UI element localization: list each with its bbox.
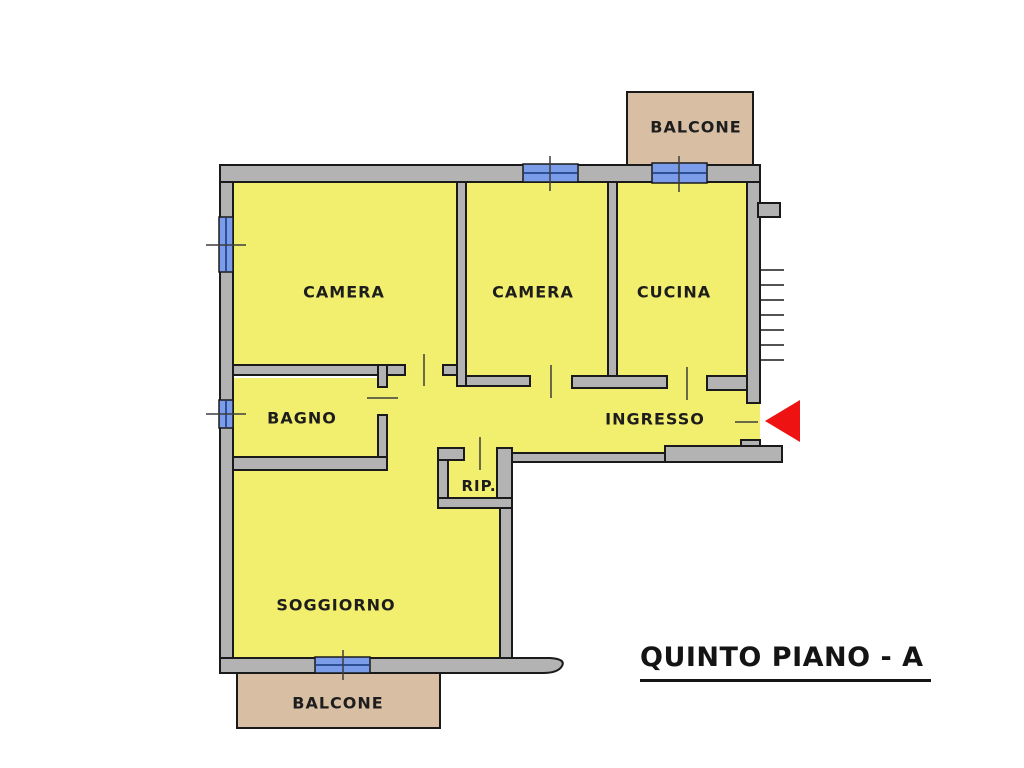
plan-title: QUINTO PIANO - A [640, 642, 931, 682]
room-label-camera-2: CAMERA [492, 283, 574, 302]
wall-cucina-bottom-right [707, 376, 747, 390]
room-label-balcone-bottom: BALCONE [292, 694, 383, 713]
wall-soggiorno-right [500, 508, 512, 658]
wall-camera1-bottom-right [443, 365, 457, 375]
room-area-soggiorno [233, 460, 500, 658]
room-label-camera-1: CAMERA [303, 283, 385, 302]
room-area-camera-2 [466, 182, 608, 376]
wall-camera2-bottom-left [466, 376, 530, 386]
room-area-passage [387, 445, 438, 470]
wall-bagno-right-lower [378, 415, 387, 457]
wall-camera1-camera2-divider [457, 182, 466, 386]
floor-plan-canvas: CAMERA CAMERA CUCINA BAGNO INGRESSO RIP.… [0, 0, 1024, 768]
wall-camera2-bottom-right [572, 376, 667, 388]
wall-bagno-bottom [233, 457, 387, 470]
wall-ingresso-bottom-right [665, 446, 782, 462]
wall-rip-bottom [438, 498, 512, 508]
entrance-arrow-icon [765, 400, 800, 442]
room-area-cucina [617, 182, 747, 378]
wall-rip-top [438, 448, 464, 460]
room-area-camera-1 [233, 182, 457, 365]
stairs [760, 270, 784, 360]
wall-bagno-right-stub [378, 365, 387, 387]
room-label-rip: RIP. [461, 477, 496, 495]
room-label-ingresso: INGRESSO [605, 410, 705, 429]
room-label-bagno: BAGNO [267, 409, 337, 428]
room-label-cucina: CUCINA [637, 283, 711, 302]
room-label-soggiorno: SOGGIORNO [276, 596, 395, 615]
wall-ingresso-bottom-left [505, 453, 665, 462]
room-label-balcone-top: BALCONE [650, 118, 741, 137]
wall-outer-bottom [220, 658, 563, 673]
wall-right-notch [758, 203, 780, 217]
door-gap-bagno [378, 388, 387, 414]
wall-camera2-cucina-divider [608, 182, 617, 376]
